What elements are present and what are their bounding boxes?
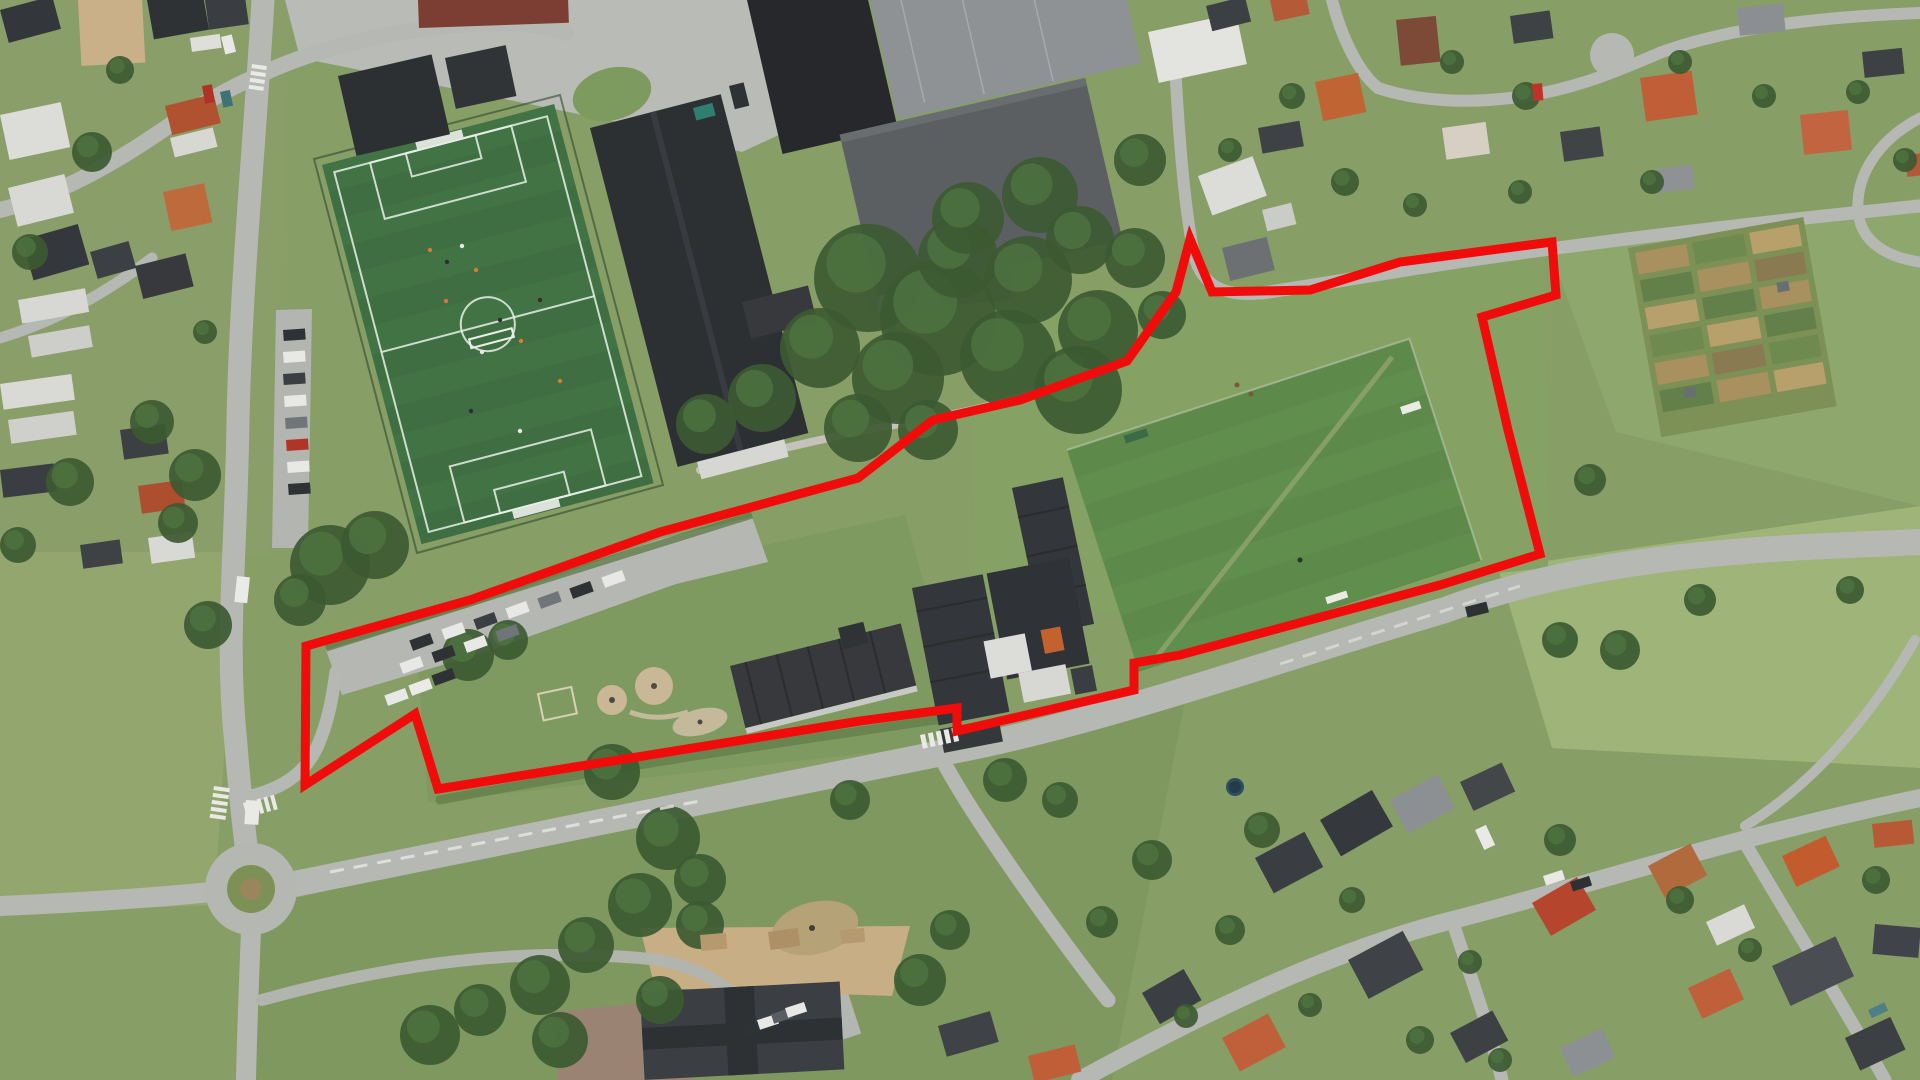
car — [283, 350, 306, 363]
tree — [1752, 84, 1776, 108]
player-dot — [480, 350, 484, 354]
sandpit — [78, 0, 145, 66]
roundabout-south-arm — [246, 930, 251, 1080]
player-dot — [518, 429, 522, 433]
car — [244, 800, 260, 825]
tree — [898, 400, 958, 460]
tree — [1042, 782, 1078, 818]
tree — [674, 854, 726, 906]
house-orange — [1872, 820, 1914, 848]
tree — [676, 394, 736, 454]
tree — [608, 873, 672, 937]
tree — [193, 320, 217, 344]
tree — [584, 744, 640, 800]
player-dot — [519, 339, 523, 343]
tree — [1574, 464, 1606, 496]
tree — [1542, 622, 1578, 658]
tree — [400, 1005, 460, 1065]
house — [1872, 924, 1920, 958]
garden-shed — [1776, 281, 1790, 293]
player-dot — [558, 379, 562, 383]
tree — [274, 574, 326, 626]
tree — [1458, 950, 1482, 974]
tree — [1105, 228, 1165, 288]
play-equipment — [809, 925, 815, 931]
house-grey — [1737, 3, 1786, 36]
tree — [558, 917, 614, 973]
tree — [1666, 886, 1694, 914]
player-dot — [444, 299, 448, 303]
tree — [1046, 206, 1114, 274]
car — [283, 372, 306, 385]
tree — [106, 56, 134, 84]
house — [1510, 10, 1554, 43]
aerial-map-screenshot — [0, 0, 1920, 1080]
house-orange — [1800, 110, 1852, 155]
tree — [1836, 576, 1864, 604]
car — [284, 394, 307, 407]
tree — [1684, 584, 1716, 616]
tree — [636, 976, 684, 1024]
house-brown — [1396, 16, 1441, 66]
tree — [0, 527, 36, 563]
tree — [1403, 193, 1427, 217]
allotment-gardens — [1628, 217, 1837, 437]
car — [285, 416, 308, 429]
tree — [1508, 180, 1532, 204]
tree — [1114, 134, 1166, 186]
tree — [1132, 840, 1172, 880]
tree — [184, 601, 232, 649]
tree — [1893, 148, 1917, 172]
player-dot — [538, 298, 542, 302]
car — [283, 328, 306, 341]
tree — [830, 780, 870, 820]
tree — [983, 758, 1027, 802]
car — [288, 482, 311, 495]
tree — [46, 458, 94, 506]
tree — [341, 511, 409, 579]
garden-shed — [1683, 386, 1697, 398]
tree — [1244, 812, 1280, 848]
tree — [824, 394, 892, 462]
tree — [454, 984, 506, 1036]
tree — [1406, 1026, 1434, 1054]
white-building — [983, 633, 1031, 678]
tree — [1488, 1048, 1512, 1072]
tree — [510, 955, 570, 1015]
tree — [1600, 630, 1640, 670]
tree — [532, 1012, 588, 1068]
tree — [1640, 170, 1664, 194]
tree — [1331, 168, 1359, 196]
tree — [930, 910, 970, 950]
tree — [130, 400, 174, 444]
roundabout-center — [240, 878, 262, 900]
tree — [12, 234, 48, 270]
tree — [1218, 138, 1242, 162]
tree — [1279, 83, 1305, 109]
player-dot — [1235, 383, 1240, 388]
car — [234, 576, 250, 603]
tree — [1339, 887, 1365, 913]
tree — [1440, 50, 1464, 74]
tree — [488, 620, 528, 660]
tree — [1862, 866, 1890, 894]
play-equipment — [651, 683, 657, 689]
tree — [932, 182, 1004, 254]
car-red — [286, 438, 309, 451]
trampoline-mat — [1229, 781, 1241, 793]
tree — [1544, 824, 1576, 856]
sand-structure — [840, 928, 865, 944]
player-dot — [469, 409, 473, 413]
tree — [1215, 915, 1245, 945]
tree — [72, 132, 112, 172]
aerial-map-canvas — [0, 0, 1920, 1080]
tree — [1086, 906, 1118, 938]
tree — [1668, 50, 1692, 74]
car-red — [1532, 83, 1543, 101]
play-equipment — [698, 720, 703, 725]
player-dot — [428, 248, 432, 252]
house-orange — [163, 183, 212, 231]
tree — [1174, 1004, 1198, 1028]
player-dot — [445, 260, 449, 264]
play-equipment — [609, 697, 615, 703]
tree — [1738, 938, 1762, 962]
player-dot — [460, 244, 464, 248]
sand-structure — [700, 933, 727, 951]
cul-de-sac — [1590, 33, 1634, 77]
house-white — [1442, 122, 1490, 160]
car — [287, 460, 310, 473]
player-dot — [1298, 558, 1303, 563]
player-dot — [498, 318, 502, 322]
tree — [158, 503, 198, 543]
tree — [1846, 80, 1870, 104]
player-dot — [474, 268, 478, 272]
house-orange — [1640, 71, 1698, 122]
house — [1862, 48, 1904, 78]
tree — [169, 449, 221, 501]
tree — [1298, 993, 1322, 1017]
house — [1560, 126, 1604, 161]
tree — [728, 364, 796, 432]
map-features — [0, 0, 1920, 1080]
tree — [894, 954, 946, 1006]
player-dot — [1249, 392, 1254, 397]
tree — [780, 308, 860, 388]
